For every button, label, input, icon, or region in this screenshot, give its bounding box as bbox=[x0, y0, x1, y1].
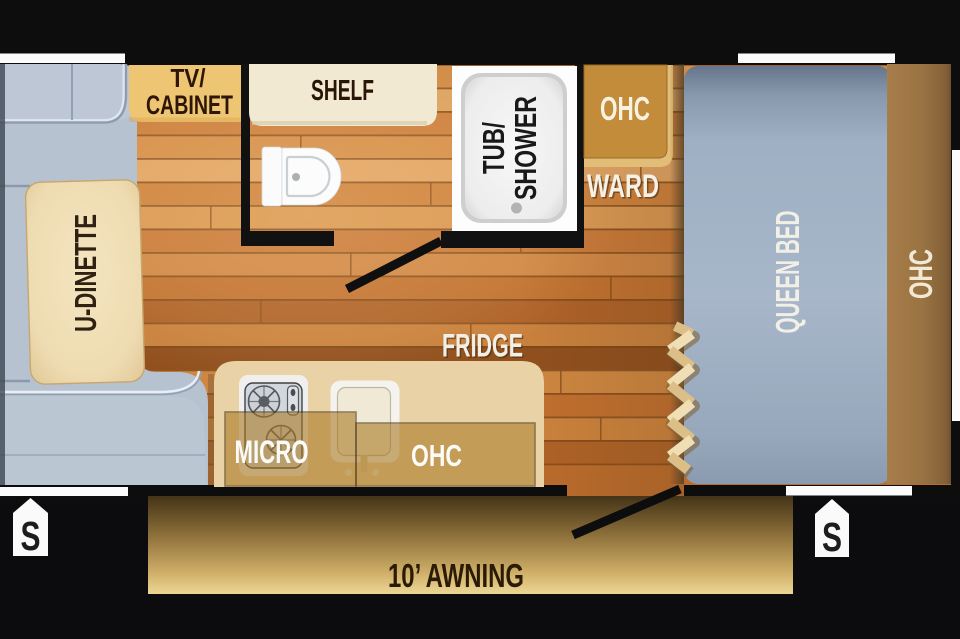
svg-text:MICRO: MICRO bbox=[235, 434, 309, 470]
svg-text:QUEEN BED: QUEEN BED bbox=[769, 211, 806, 334]
svg-text:10’ AWNING: 10’ AWNING bbox=[388, 557, 524, 594]
svg-text:OHC: OHC bbox=[411, 438, 462, 473]
svg-text:WARD: WARD bbox=[587, 168, 659, 204]
svg-text:SHOWER: SHOWER bbox=[508, 96, 543, 200]
svg-text:U-DINETTE: U-DINETTE bbox=[68, 214, 103, 332]
svg-text:CABINET: CABINET bbox=[146, 90, 233, 120]
svg-text:OHC: OHC bbox=[600, 90, 650, 127]
svg-text:FRIDGE: FRIDGE bbox=[442, 328, 523, 364]
svg-text:TV/: TV/ bbox=[171, 63, 206, 93]
svg-text:S: S bbox=[21, 513, 41, 559]
svg-text:TUB/: TUB/ bbox=[476, 122, 511, 174]
svg-text:SHELF: SHELF bbox=[311, 75, 374, 107]
svg-text:S: S bbox=[822, 514, 842, 560]
svg-text:OHC: OHC bbox=[903, 249, 939, 299]
